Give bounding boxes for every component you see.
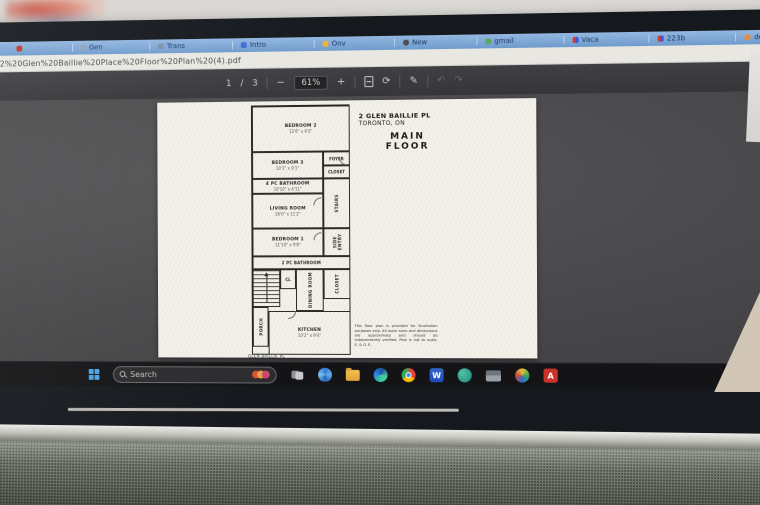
zoom-level-value[interactable]: 61% (294, 75, 329, 89)
zoom-in-button[interactable]: + (337, 77, 345, 87)
room-dims: 11'10" x 9'8" (275, 242, 301, 247)
edge-browser-icon[interactable] (374, 368, 388, 382)
rotate-icon[interactable]: ⟳ (382, 76, 390, 86)
bookmark-label: Vaca (581, 36, 598, 44)
task-view-icon[interactable] (290, 368, 304, 382)
favicon-flag (572, 37, 578, 43)
bookmark-item[interactable]: Gen (72, 43, 103, 51)
bookmark-item[interactable]: gmail (476, 37, 514, 46)
toolbar-divider (267, 77, 268, 89)
room-living-room: LIVING ROOM 16'0" x 11'2" (252, 193, 323, 228)
bookmark-item[interactable]: New (394, 38, 427, 47)
toolbar-divider (399, 75, 400, 87)
bookmark-item[interactable]: Intro (232, 41, 266, 49)
title-block: 2 GLEN BAILLIE PL TORONTO, ON MAIN FLOOR (359, 111, 457, 152)
photos-icon[interactable] (318, 368, 332, 382)
room-bedroom-1: BEDROOM 1 11'10" x 9'8" (252, 228, 323, 256)
word-icon[interactable]: W (430, 368, 444, 382)
bookmark-label: doing (754, 33, 760, 41)
favicon-globe (745, 34, 751, 40)
floor-title: FLOOR (359, 141, 457, 152)
start-button-icon[interactable] (89, 368, 100, 379)
laptop-screen: Gen Trans Intro Onv New (0, 9, 760, 457)
room-2pc-bathroom: 2 PC BATHROOM (253, 256, 351, 269)
room-name: SIDE ENTRY (332, 229, 342, 255)
weather-widget-icon[interactable] (255, 371, 270, 379)
bookmark-label: gmail (494, 37, 514, 45)
search-label: Search (130, 370, 250, 379)
room-dims: 10'1" x 9'1" (276, 165, 299, 170)
favicon-gray (80, 45, 86, 51)
room-name: DINING ROOM (307, 272, 312, 308)
favicon-blue (241, 42, 247, 48)
room-bedroom-3: BEDROOM 3 10'1" x 9'1" (252, 152, 323, 179)
speaker-mesh-surface (0, 441, 760, 505)
pdf-page: 2 GLEN BAILLIE PL TORONTO, ON MAIN FLOOR… (157, 98, 537, 358)
bookmark-label: Onv (332, 40, 346, 48)
room-stairs-hall: STAIRS (323, 178, 350, 228)
search-icon (120, 371, 126, 377)
bookmark-item[interactable]: Vaca (563, 36, 598, 45)
room-name: CLOSET (328, 169, 345, 174)
bookmark-item[interactable]: Trans (149, 42, 184, 50)
room-name: CL (285, 277, 290, 282)
undo-icon[interactable]: ↶ (437, 76, 445, 86)
keyboard-icon[interactable] (486, 370, 501, 381)
teams-icon[interactable] (458, 368, 472, 382)
redo-icon[interactable]: ↷ (454, 75, 462, 85)
pdf-viewer-canvas[interactable]: 2 GLEN BAILLIE PL TORONTO, ON MAIN FLOOR… (0, 91, 760, 363)
toolbar-divider (427, 75, 428, 87)
room-name: PORCH (258, 318, 263, 336)
url-input[interactable]: le/2%20Glen%20Baillie%20Place%20Floor%20… (0, 56, 241, 69)
bookmark-label: Trans (167, 42, 185, 50)
room-bedroom-2: BEDROOM 2 12'6" x 9'2" (252, 105, 350, 152)
room-dims: 12'6" x 9'2" (289, 129, 312, 134)
page-number-current[interactable]: 1 (226, 79, 232, 89)
stairs (253, 269, 281, 307)
room-closet-small: CL (280, 269, 296, 289)
chrome-icon[interactable] (402, 368, 416, 382)
favicon-dark-circle (403, 40, 409, 46)
file-explorer-icon[interactable] (346, 369, 360, 380)
favicon-green (485, 38, 491, 44)
bezel-reflection (68, 408, 459, 411)
room-name: STAIRS (334, 194, 339, 212)
floor-plan-drawing: BEDROOM 2 12'6" x 9'2" BEDROOM 3 10'1" x… (251, 104, 351, 355)
screen-content: Gen Trans Intro Onv New (0, 29, 760, 388)
room-dims: 10'10" x 4'11" (274, 186, 302, 191)
room-dims: 10'2" x 9'4" (298, 333, 321, 338)
photo-of-laptop: Gen Trans Intro Onv New (0, 0, 760, 505)
room-dims: 16'0" x 11'2" (275, 211, 301, 216)
globe-app-icon[interactable] (515, 368, 529, 382)
favicon-flag (657, 36, 663, 42)
favicon-yellow (323, 41, 329, 47)
fit-to-page-icon[interactable] (364, 76, 373, 87)
bookmark-item[interactable]: doing (735, 33, 760, 42)
room-4pc-bathroom: 4 PC BATHROOM 10'10" x 4'11" (252, 178, 323, 193)
page-number-total: 3 (252, 78, 258, 88)
bookmark-item[interactable]: 223b (648, 34, 685, 43)
bookmark-label: 223b (667, 34, 685, 42)
favicon-red (16, 46, 22, 52)
draw-icon[interactable]: ✎ (409, 76, 417, 86)
room-name: CLOSET (334, 274, 339, 293)
windows-taskbar: Search W A (0, 361, 760, 389)
bookmark-label: Gen (89, 43, 103, 51)
disclaimer-text: This floor plan is provided for illustra… (355, 324, 438, 348)
bookmark-label: New (412, 38, 427, 46)
page-number-separator: / (240, 78, 243, 88)
room-closet: CLOSET (323, 165, 350, 178)
search-input[interactable]: Search (113, 366, 277, 383)
stairs-arrow (266, 273, 267, 303)
room-dining: DINING ROOM (296, 269, 324, 311)
pdf-toolbar-controls: 1 / 3 − 61% + ⟳ ✎ ↶ ↷ (226, 73, 463, 90)
room-side-entry: SIDE ENTRY (323, 228, 350, 256)
acrobat-icon[interactable]: A (544, 369, 558, 383)
room-kitchen: KITCHEN 10'2" x 9'4" (268, 311, 350, 355)
bookmark-item[interactable]: Onv (314, 40, 346, 48)
bookmark-label: Intro (250, 41, 266, 49)
room-closet-b: CLOSET (324, 269, 351, 299)
favicon-gray (158, 43, 164, 49)
zoom-out-button[interactable]: − (276, 78, 284, 88)
bookmark-item[interactable] (16, 46, 25, 52)
plan-footer-label: GLEN BAILLIE PL (248, 354, 285, 359)
room-name: 2 PC BATHROOM (282, 260, 321, 265)
toolbar-divider (354, 76, 355, 88)
taskbar-items: Search W A (89, 362, 558, 388)
room-porch: PORCH (253, 307, 269, 347)
